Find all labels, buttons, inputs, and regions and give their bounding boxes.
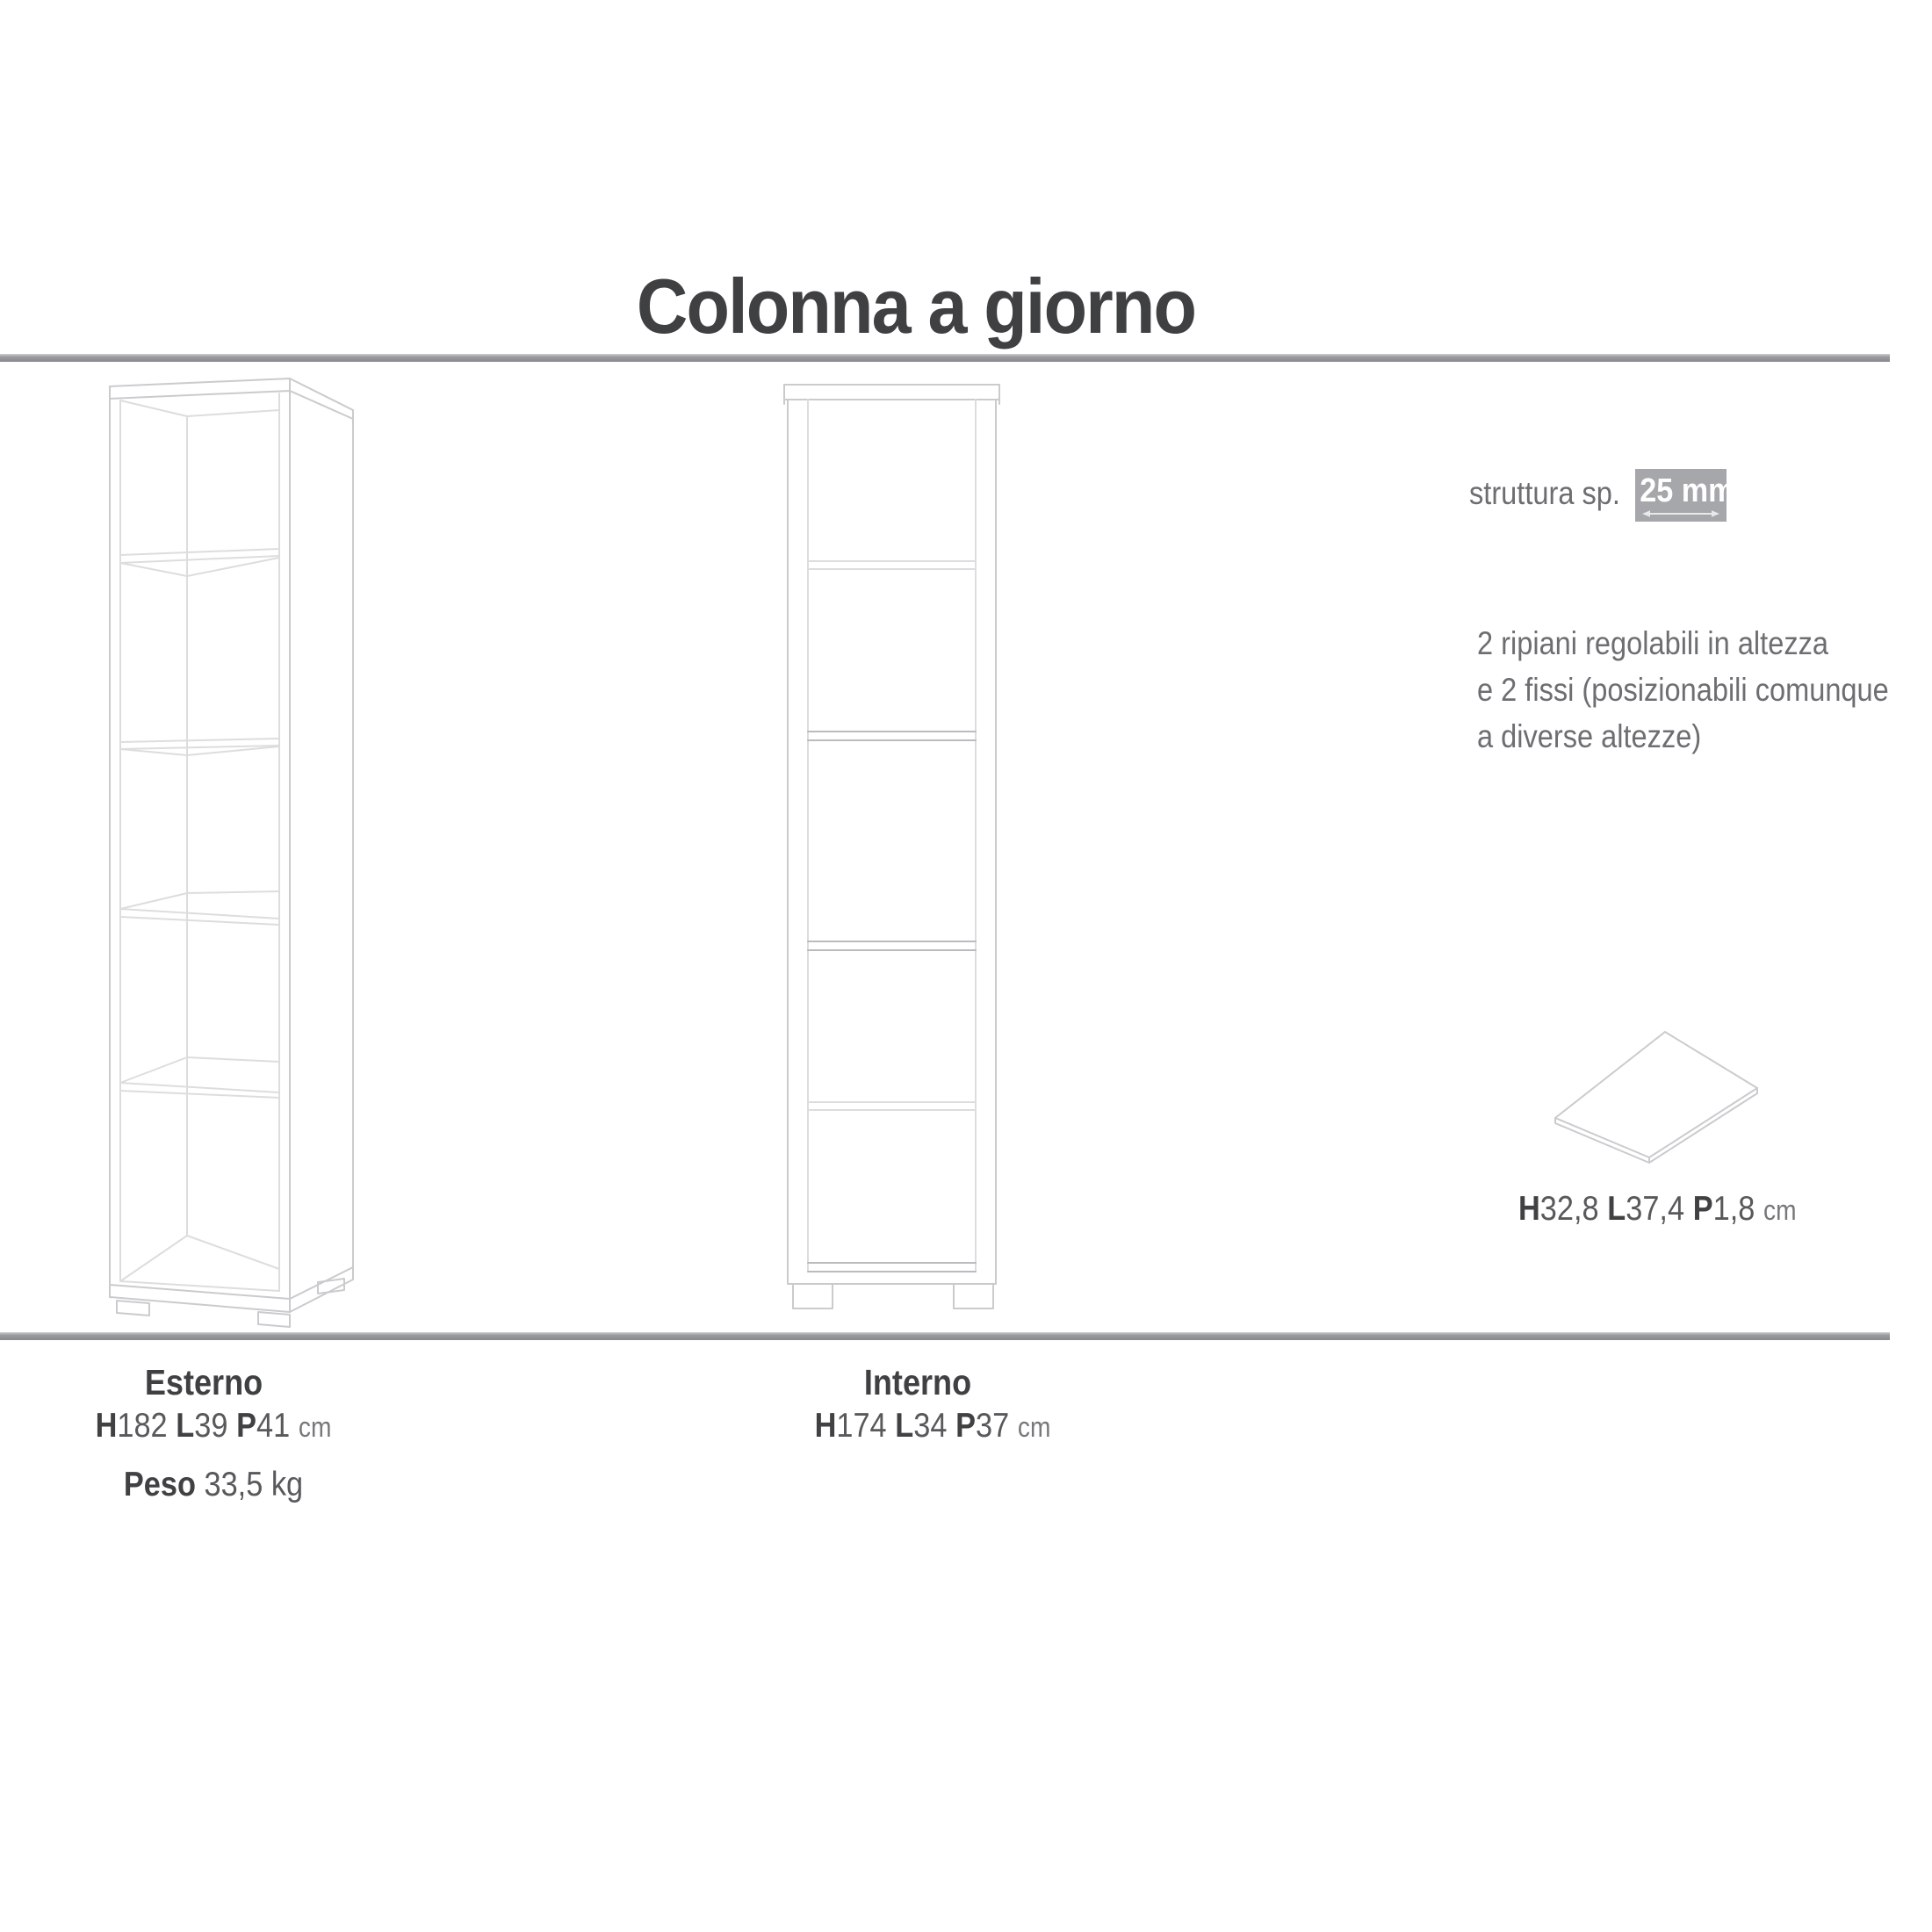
shelf-panel-drawing — [1555, 1032, 1757, 1163]
structure-note-label: struttura sp. — [1469, 475, 1620, 512]
exterior-view-drawing — [110, 378, 353, 1327]
dimension-arrow-icon — [1642, 509, 1719, 518]
dim-unit: cm — [1763, 1194, 1797, 1226]
dim-h-value: 174 — [836, 1407, 886, 1445]
shelves-note-line: 2 ripiani regolabili in altezza — [1477, 620, 1889, 667]
interior-view-drawing — [784, 385, 999, 1308]
shelves-note: 2 ripiani regolabili in altezza e 2 fiss… — [1477, 620, 1889, 760]
title-separator — [0, 354, 1890, 362]
dim-l-value: 34 — [913, 1407, 947, 1445]
dim-p-label: P — [236, 1407, 256, 1445]
dim-h-label: H — [96, 1407, 118, 1445]
spec-sheet: Colonna a giorno struttura sp. 25 mm 2 r… — [0, 0, 1932, 1932]
dim-unit: cm — [1018, 1411, 1051, 1443]
shelves-note-line: e 2 fissi (posizionabili comunque — [1477, 667, 1889, 713]
weight-label: Peso — [124, 1466, 196, 1503]
exterior-weight: Peso 33,5 kg — [59, 1466, 368, 1504]
shelf-panel-dimensions: H32,8L37,4P1,8cm — [1518, 1190, 1797, 1229]
interior-dimensions: H174L34P37cm — [778, 1407, 1087, 1445]
structure-thickness-value: 25 mm — [1640, 469, 1722, 513]
weight-value: 33,5 kg — [204, 1466, 303, 1503]
dim-l-label: L — [1607, 1190, 1626, 1228]
dim-h-value: 182 — [117, 1407, 167, 1445]
dim-h-label: H — [1518, 1190, 1540, 1228]
dim-p-label: P — [1693, 1190, 1713, 1228]
exterior-dimensions: H182L39P41cm — [59, 1407, 368, 1445]
dim-p-value: 41 — [256, 1407, 290, 1445]
dim-p-label: P — [955, 1407, 976, 1445]
dim-l-label: L — [176, 1407, 194, 1445]
structure-thickness-badge: 25 mm — [1635, 469, 1727, 522]
footer-separator — [0, 1332, 1890, 1340]
dim-unit: cm — [299, 1411, 332, 1443]
interior-label: Interno — [802, 1362, 1034, 1403]
dim-h-label: H — [815, 1407, 837, 1445]
page-title: Colonna a giorno — [633, 262, 1199, 351]
dim-h-value: 32,8 — [1540, 1190, 1599, 1228]
shelves-note-line: a diverse altezze) — [1477, 713, 1889, 760]
dim-l-value: 39 — [194, 1407, 227, 1445]
dim-l-value: 37,4 — [1626, 1190, 1684, 1228]
exterior-label: Esterno — [88, 1362, 320, 1403]
dim-p-value: 1,8 — [1713, 1190, 1755, 1228]
dim-p-value: 37 — [976, 1407, 1009, 1445]
dim-l-label: L — [895, 1407, 913, 1445]
